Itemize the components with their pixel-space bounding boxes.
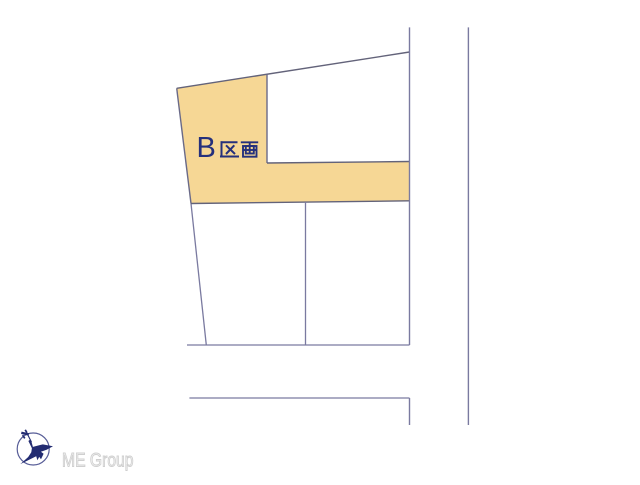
svg-text:B: B — [197, 132, 216, 164]
svg-text:ME Group: ME Group — [62, 451, 134, 472]
